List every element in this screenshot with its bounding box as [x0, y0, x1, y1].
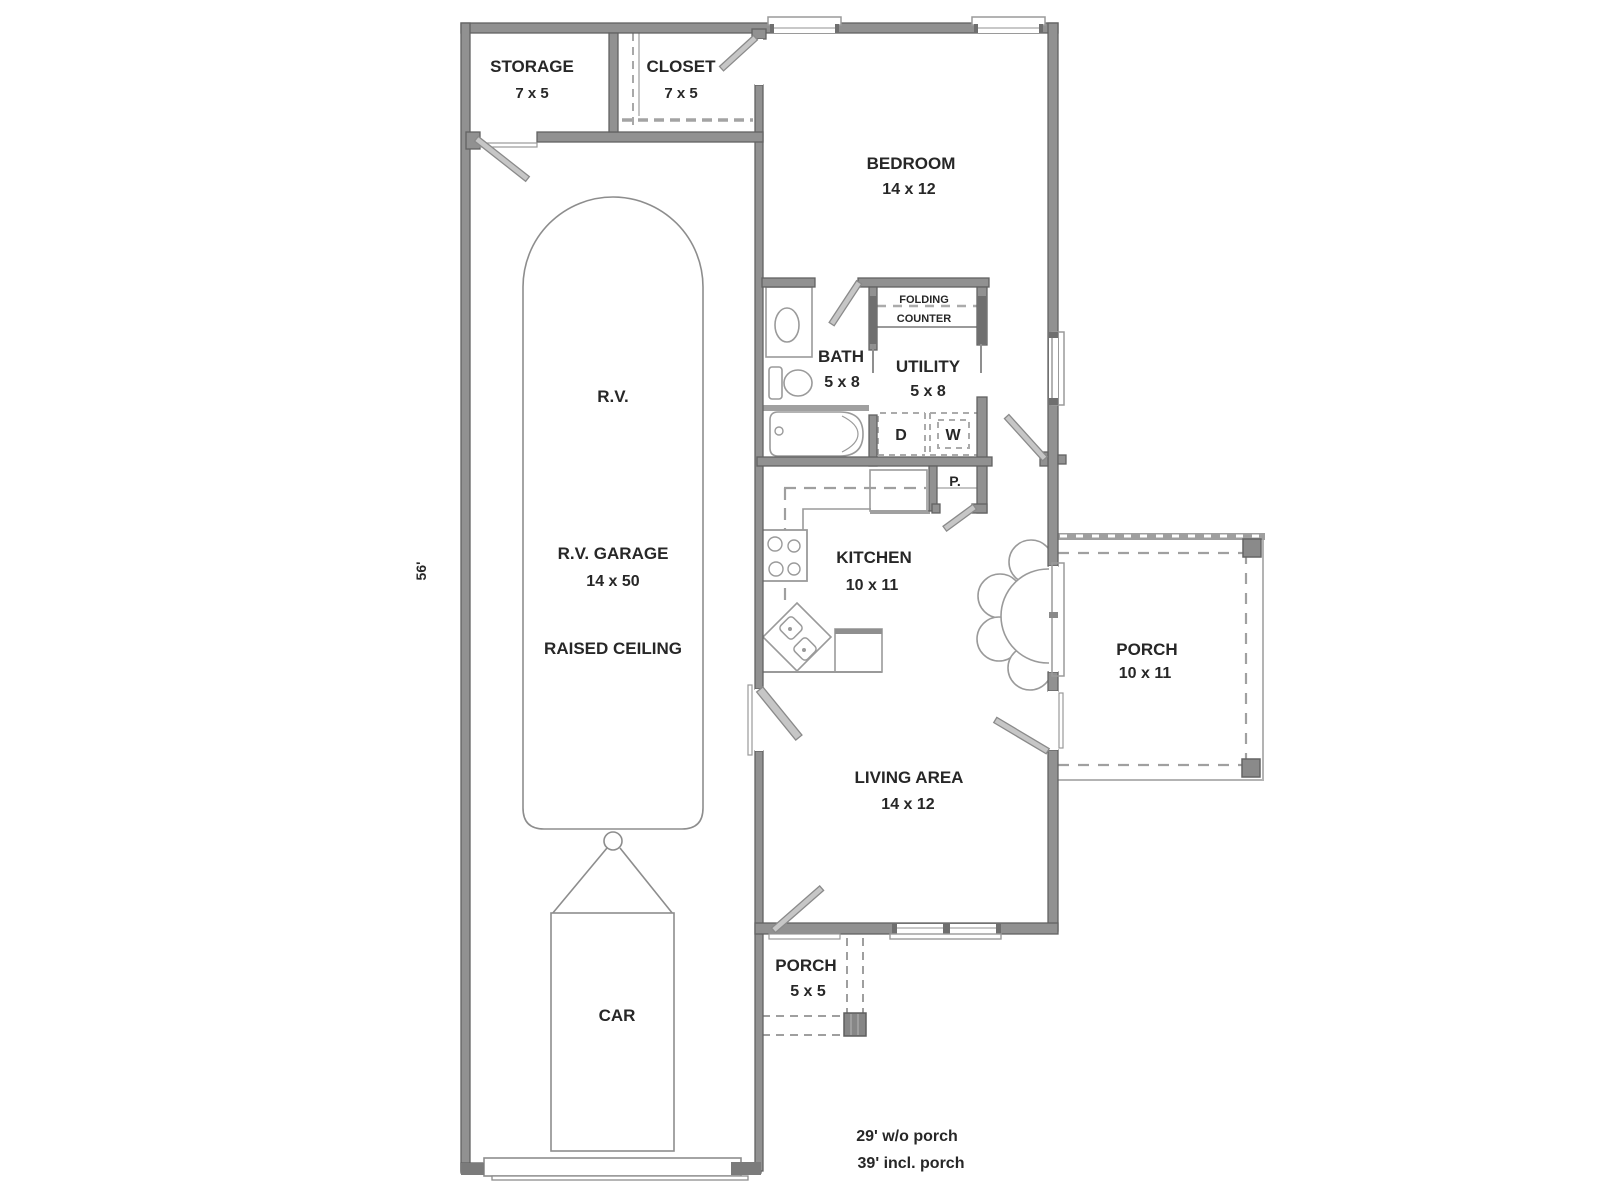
svg-text:FOLDING: FOLDING [899, 294, 949, 306]
svg-text:BATH: BATH [818, 347, 864, 366]
svg-text:UTILITY: UTILITY [896, 357, 961, 376]
svg-text:PORCH: PORCH [1116, 640, 1177, 659]
svg-text:5 x 8: 5 x 8 [824, 374, 860, 391]
svg-text:29' w/o porch: 29' w/o porch [856, 1128, 958, 1145]
svg-text:5 x 8: 5 x 8 [910, 383, 946, 400]
svg-text:14 x 12: 14 x 12 [881, 796, 934, 813]
svg-text:STORAGE: STORAGE [490, 57, 574, 76]
svg-text:56': 56' [413, 562, 429, 581]
svg-text:CLOSET: CLOSET [647, 57, 717, 76]
svg-text:W: W [945, 427, 961, 444]
svg-text:10 x 11: 10 x 11 [846, 577, 899, 594]
svg-text:COUNTER: COUNTER [897, 313, 951, 325]
svg-text:KITCHEN: KITCHEN [836, 548, 912, 567]
svg-text:39' incl. porch: 39' incl. porch [858, 1155, 965, 1172]
svg-text:R.V. GARAGE: R.V. GARAGE [558, 544, 669, 563]
svg-text:BEDROOM: BEDROOM [867, 154, 956, 173]
svg-text:D: D [895, 427, 907, 444]
svg-text:P.: P. [949, 473, 960, 489]
svg-text:10 x 11: 10 x 11 [1119, 665, 1172, 682]
svg-text:14 x 50: 14 x 50 [586, 573, 639, 590]
svg-text:7 x 5: 7 x 5 [664, 85, 697, 102]
svg-text:R.V.: R.V. [597, 387, 629, 406]
svg-text:PORCH: PORCH [775, 956, 836, 975]
svg-text:5 x 5: 5 x 5 [790, 983, 826, 1000]
svg-text:LIVING AREA: LIVING AREA [855, 768, 964, 787]
svg-text:7 x 5: 7 x 5 [515, 85, 548, 102]
svg-text:RAISED CEILING: RAISED CEILING [544, 639, 682, 658]
svg-text:CAR: CAR [599, 1006, 636, 1025]
svg-text:14 x 12: 14 x 12 [882, 181, 935, 198]
